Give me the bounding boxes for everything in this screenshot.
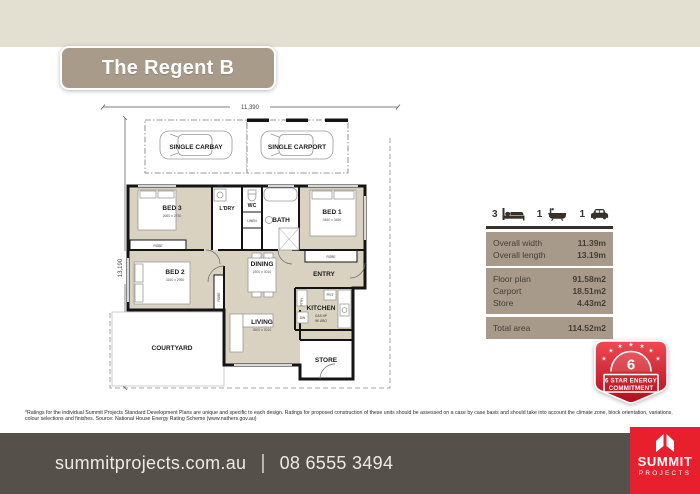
bed1-dims: 3450 x 3450 xyxy=(323,218,342,222)
row-value: 13.19m xyxy=(577,249,606,261)
row-label: Carport xyxy=(493,285,521,297)
carport-label: SINGLE CARPORT xyxy=(268,144,326,151)
car-icon xyxy=(589,207,610,221)
spec-table-total: Total area 114.52m2 xyxy=(486,317,613,339)
kitchen-note2: W/ UBO xyxy=(315,319,327,323)
summit-logo: SUMMIT PROJECTS xyxy=(630,427,700,494)
star-icon: ★ xyxy=(628,342,633,349)
bath-icon xyxy=(546,207,567,221)
bath-label: BATH xyxy=(272,217,290,224)
title-banner: The Regent B xyxy=(60,46,276,90)
table-row: Total area 114.52m2 xyxy=(493,322,606,334)
entry-label: ENTRY xyxy=(313,271,335,278)
footer-divider: | xyxy=(260,452,265,475)
spec-table-areas: Floor plan 91.58m2 Carport 18.51m2 Store… xyxy=(486,268,613,314)
brochure-page: The Regent B 11,390 13,190 xyxy=(0,0,700,494)
summit-logo-mark-icon xyxy=(651,434,679,452)
badge-line2: COMMITMENT xyxy=(609,385,654,392)
carbays-count: 1 xyxy=(579,209,585,220)
bed-icon xyxy=(502,207,525,221)
table-row: Floor plan 91.58m2 xyxy=(493,273,606,285)
pantry-label: PTRY xyxy=(300,297,304,306)
row-label: Floor plan xyxy=(493,273,531,285)
star-icon: ★ xyxy=(648,348,653,355)
header-strip xyxy=(0,0,700,47)
summary-panel: 3 1 1 xyxy=(486,204,613,339)
kitchen-label: KITCHEN xyxy=(307,305,336,312)
laundry-label: L'DRY xyxy=(219,206,235,212)
dining-label: DINING xyxy=(251,261,274,268)
star-icon: ★ xyxy=(617,343,622,350)
feature-carbays: 1 xyxy=(579,207,610,221)
bed3-label: BED 3 xyxy=(162,205,182,212)
row-value: 11.39m xyxy=(578,237,606,249)
star-icon: ★ xyxy=(639,343,644,350)
bathrooms-count: 1 xyxy=(537,209,543,220)
row-value: 18.51m2 xyxy=(572,285,606,297)
row-label: Overall length xyxy=(493,249,545,261)
badge-number: 6 xyxy=(627,357,635,374)
dim-overall-width: 11,390 xyxy=(241,105,260,111)
star-icon: ★ xyxy=(655,356,660,363)
feature-icons-row: 3 1 1 xyxy=(486,204,613,224)
bed2-dims: 3150 x 2960 xyxy=(166,278,185,282)
row-value: 4.43m2 xyxy=(577,297,606,309)
floor-plan: 11,390 13,190 xyxy=(72,98,432,400)
panel-divider-rule xyxy=(486,226,613,229)
spec-table-dimensions: Overall width 11.39m Overall length 13.1… xyxy=(486,232,613,266)
living-dims: 3500 x 3010 xyxy=(253,328,272,332)
dishwasher-label: DW xyxy=(300,316,305,320)
footer-bar: summitprojects.com.au | 08 6555 3494 xyxy=(0,433,700,494)
row-label: Store xyxy=(493,297,513,309)
bed2-label: BED 2 xyxy=(165,269,185,276)
robe-bed1-label: ROBE xyxy=(326,255,335,259)
living-label: LIVING xyxy=(251,319,273,326)
fridge-label: FR'Z xyxy=(327,293,334,297)
row-label: Total area xyxy=(493,322,530,334)
bed3-dims: 2660 x 2730 xyxy=(163,214,182,218)
robe-bed3-label: ROBE xyxy=(153,244,162,248)
row-value: 91.58m2 xyxy=(572,273,606,285)
star-icon: ★ xyxy=(601,356,606,363)
footer-phone: 08 6555 3494 xyxy=(280,453,394,474)
row-label: Overall width xyxy=(493,237,542,249)
table-row: Carport 18.51m2 xyxy=(493,285,606,297)
carport-wall-piers xyxy=(247,119,348,123)
logo-text-projects: PROJECTS xyxy=(639,470,691,477)
page-title: The Regent B xyxy=(102,57,235,80)
table-row: Overall length 13.19m xyxy=(493,249,606,261)
wc-label: WC xyxy=(248,203,257,209)
robe-bed2-label: ROBE xyxy=(217,292,221,301)
badge-line1: 6 STAR ENERGY xyxy=(605,378,658,385)
bedrooms-count: 3 xyxy=(492,209,498,220)
dining-dims: 2500 x 3010 xyxy=(253,270,272,274)
row-value: 114.52m2 xyxy=(568,322,606,334)
table-row: Store 4.43m2 xyxy=(493,297,606,309)
wm-label: WM xyxy=(217,184,223,188)
footer-website: summitprojects.com.au xyxy=(55,453,246,474)
energy-badge: ★ ★ ★ ★ ★ ★ ★ 6 6 STAR ENERGY COMMITMENT xyxy=(594,340,668,404)
disclaimer-text: *Ratings for the individual Summit Proje… xyxy=(25,411,683,423)
courtyard-label: COURTYARD xyxy=(152,345,193,352)
kitchen-note1: GAS HP xyxy=(315,314,327,318)
carbay-label: SINGLE CARBAY xyxy=(169,144,223,151)
linen-label: LINEN xyxy=(247,219,257,223)
star-icon: ★ xyxy=(608,348,613,355)
logo-text-summit: SUMMIT xyxy=(638,454,693,469)
feature-bedrooms: 3 xyxy=(492,207,525,221)
table-row: Overall width 11.39m xyxy=(493,237,606,249)
bed1-label: BED 1 xyxy=(322,209,342,216)
dim-overall-length: 13,190 xyxy=(118,258,124,277)
store-label: STORE xyxy=(315,357,338,364)
feature-bathrooms: 1 xyxy=(537,207,568,221)
